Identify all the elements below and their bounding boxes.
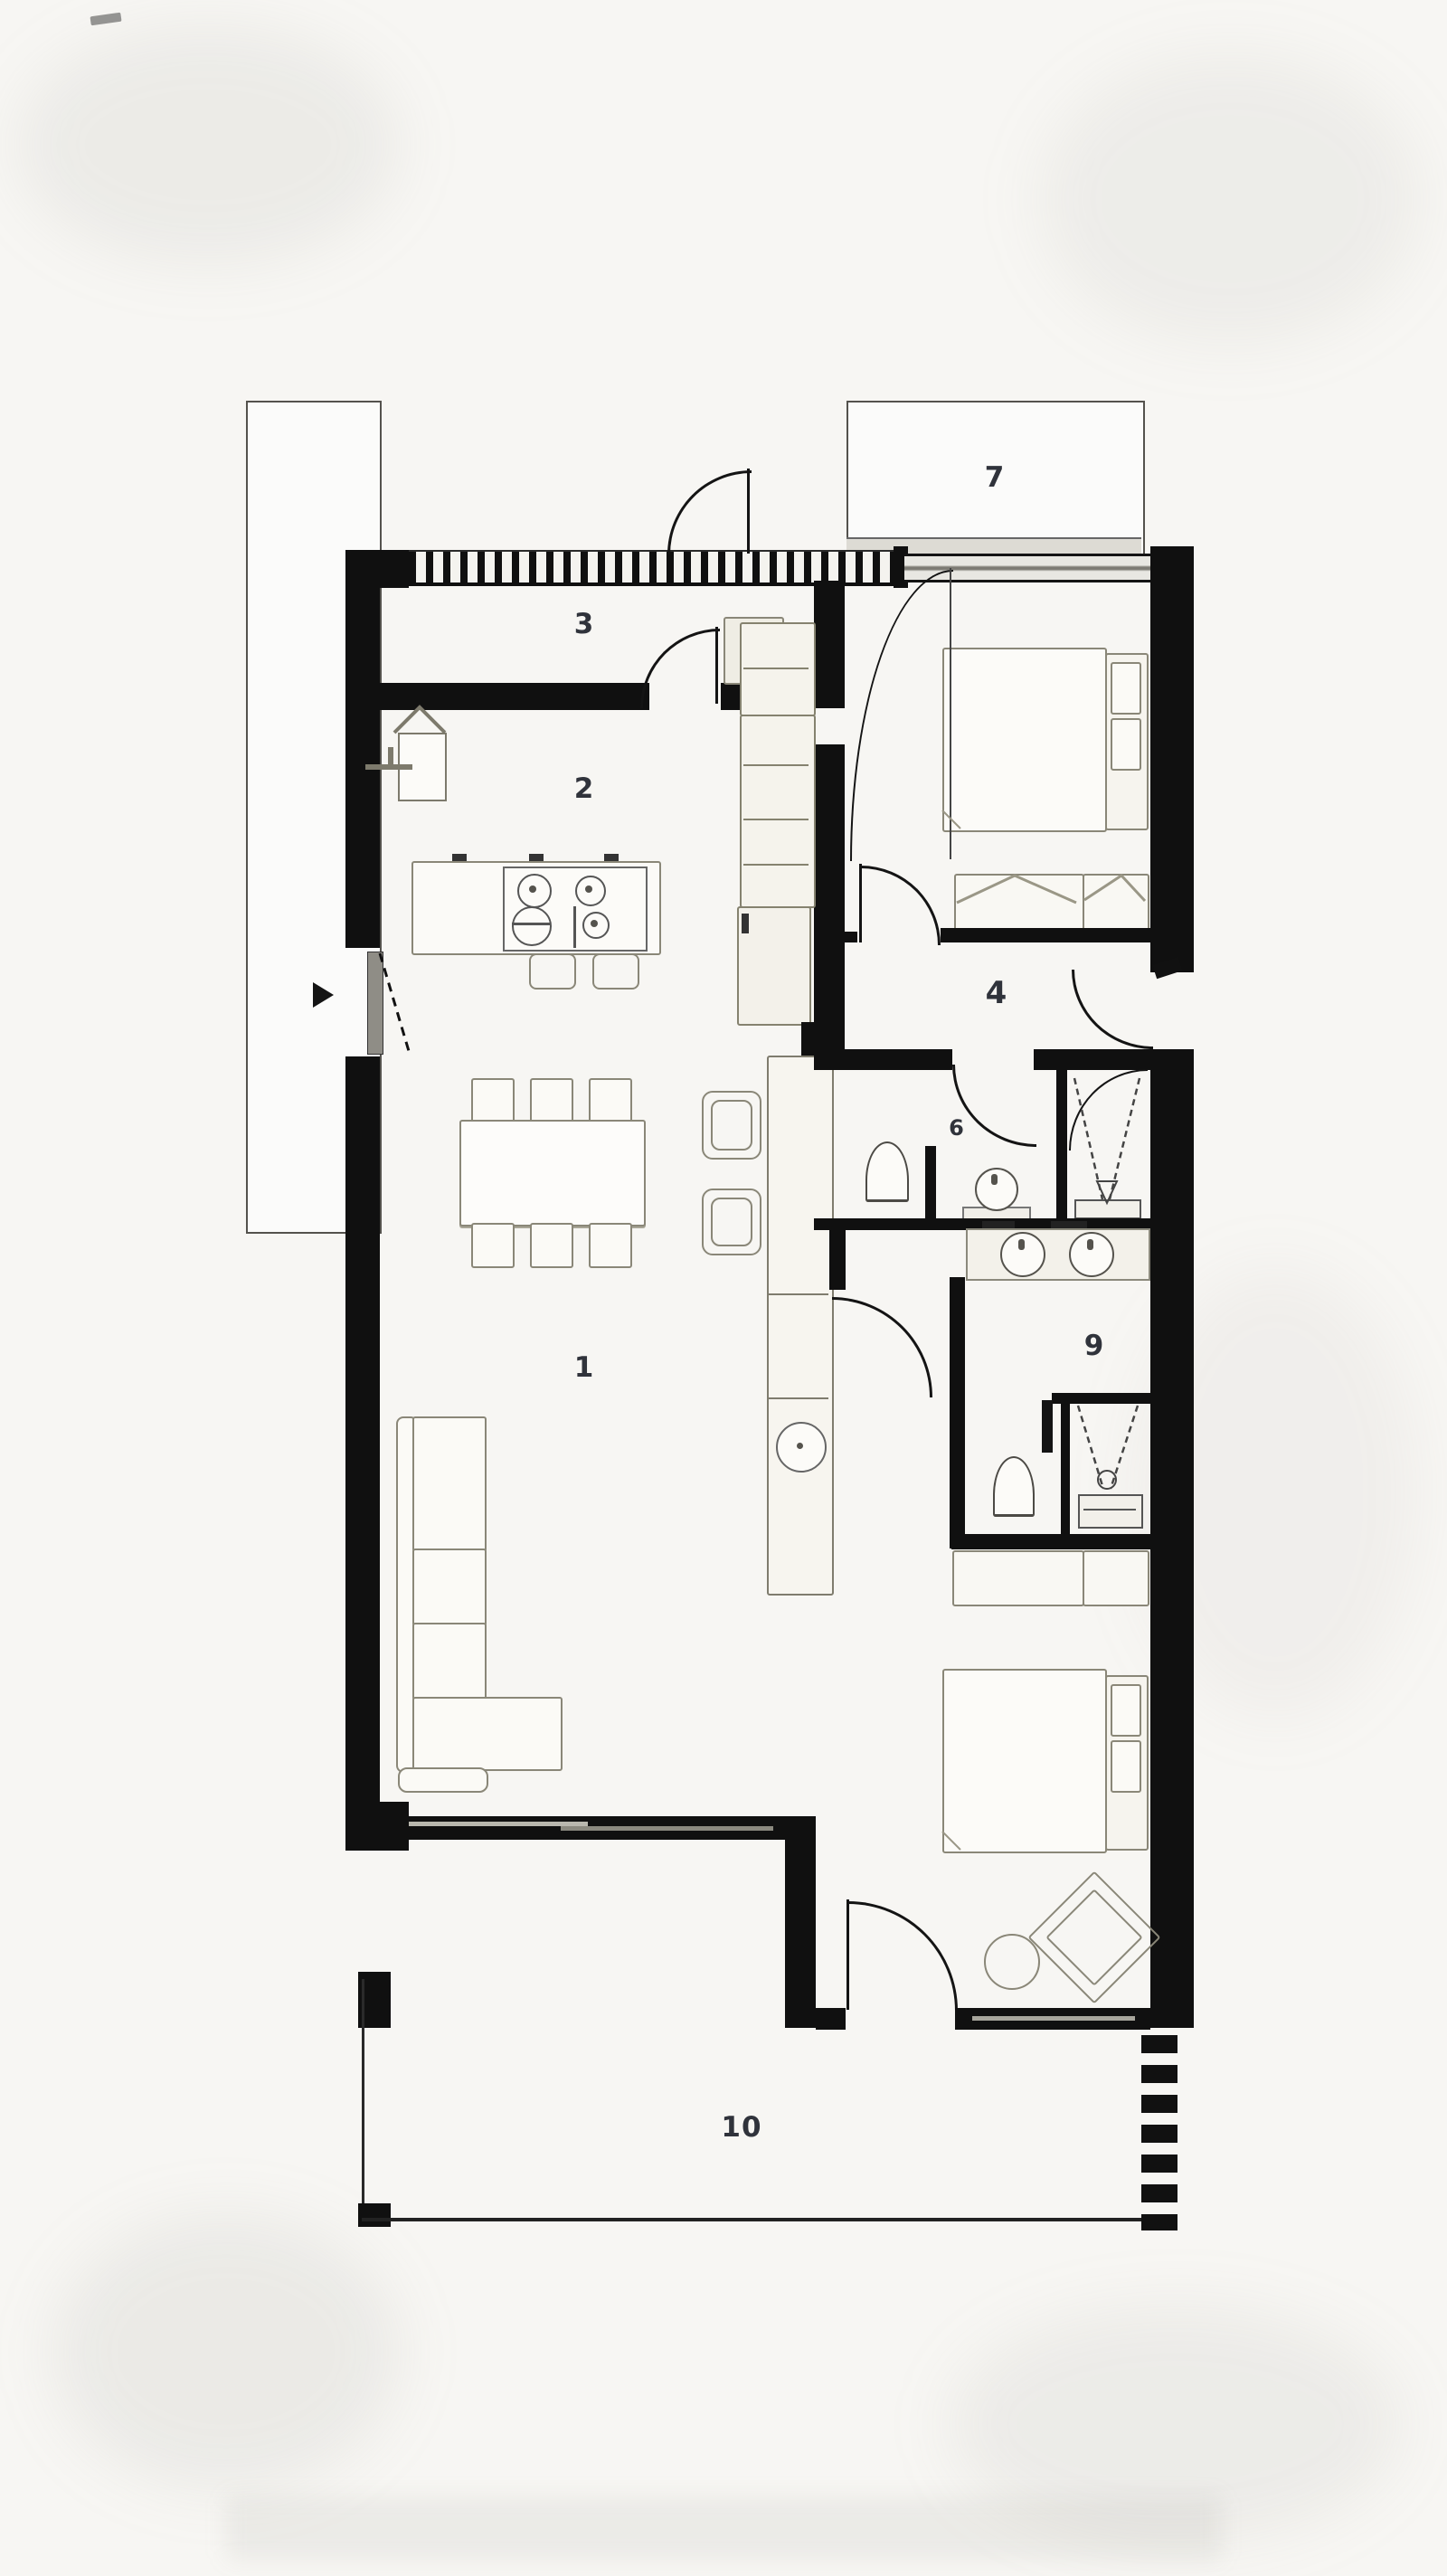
floor-plan-canvas: 7 3 2 1 (0, 0, 1447, 2576)
detail-lines (0, 0, 1447, 2576)
